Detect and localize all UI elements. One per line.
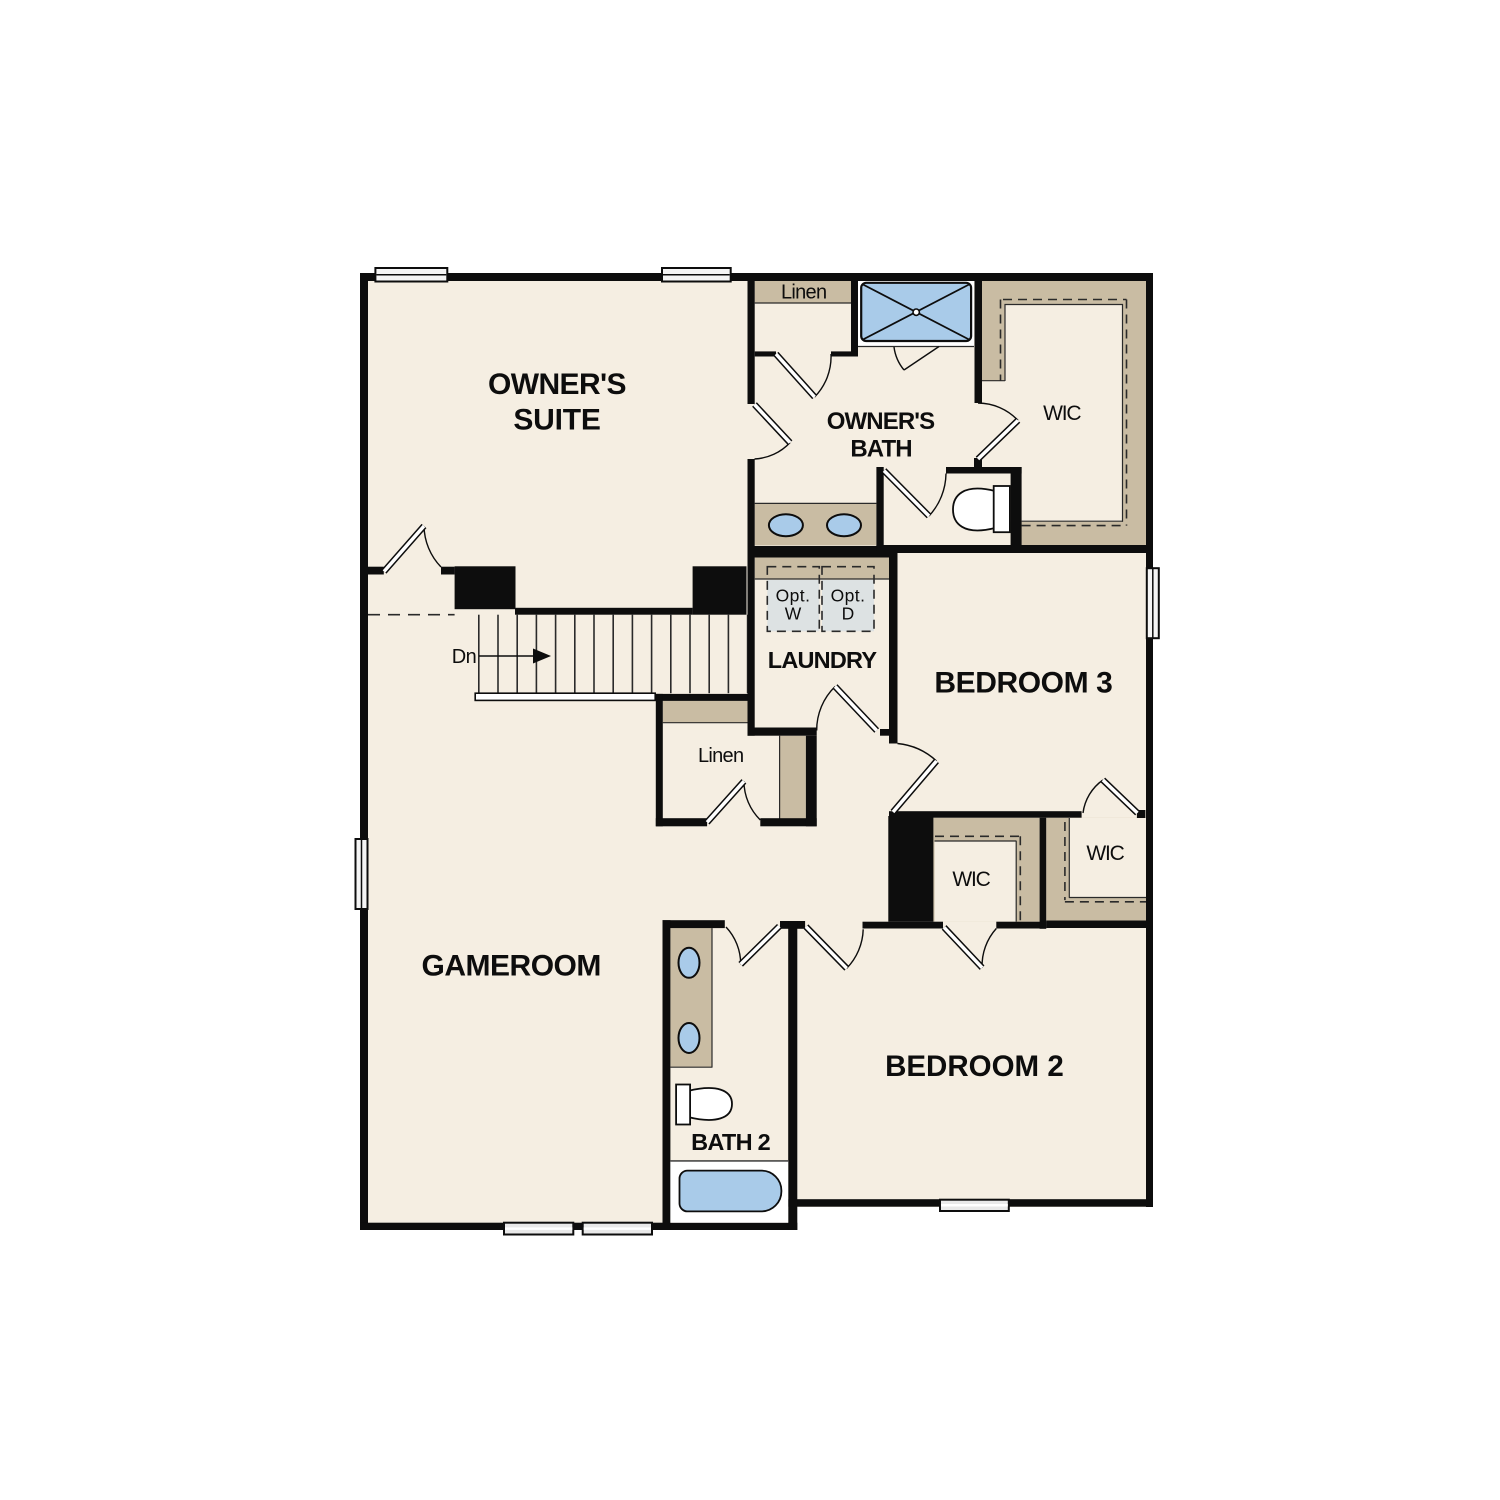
svg-text:BEDROOM 3: BEDROOM 3 (934, 667, 1112, 700)
svg-text:SUITE: SUITE (513, 404, 600, 437)
svg-text:Opt.: Opt. (831, 585, 866, 605)
svg-text:Linen: Linen (781, 282, 826, 304)
svg-text:D: D (842, 603, 855, 623)
svg-text:BEDROOM 2: BEDROOM 2 (885, 1050, 1064, 1083)
svg-text:WIC: WIC (1086, 842, 1124, 865)
svg-text:Opt.: Opt. (776, 585, 811, 605)
svg-text:BATH: BATH (850, 436, 911, 463)
svg-text:GAMEROOM: GAMEROOM (422, 950, 601, 983)
svg-text:Linen: Linen (698, 745, 743, 767)
svg-text:LAUNDRY: LAUNDRY (768, 647, 878, 673)
svg-text:OWNER'S: OWNER'S (488, 368, 626, 401)
svg-text:BATH 2: BATH 2 (691, 1129, 771, 1155)
svg-text:Dn: Dn (452, 646, 477, 668)
svg-text:WIC: WIC (1043, 402, 1081, 425)
svg-text:OWNER'S: OWNER'S (827, 408, 935, 435)
svg-text:WIC: WIC (952, 868, 990, 891)
svg-text:W: W (785, 603, 802, 623)
